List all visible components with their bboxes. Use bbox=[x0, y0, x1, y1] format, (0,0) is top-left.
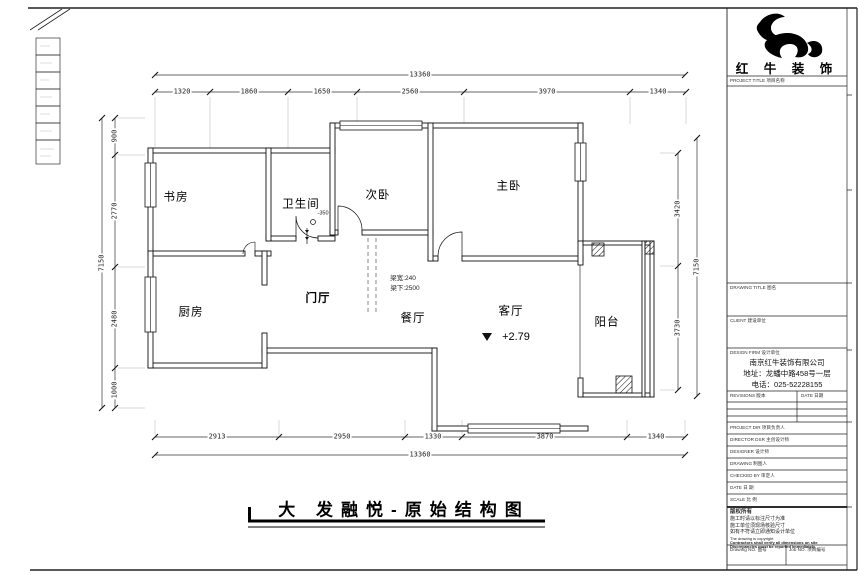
dim-top-3: 1650 bbox=[313, 89, 332, 96]
project-title-label: PROJECT TITLE 项目名称 bbox=[730, 79, 785, 84]
living-level-marker bbox=[482, 333, 492, 341]
note-0: 版权所有 bbox=[730, 510, 752, 516]
drawing-title: 大 发融悦-原始结构图 bbox=[278, 496, 529, 521]
drawing-sheet: 13360 1320 1860 1650 2560 3970 1340 2913… bbox=[0, 0, 860, 580]
row-checked: CHECKED BY 审定人 bbox=[730, 474, 775, 479]
room-label-kitchen: 厨房 bbox=[179, 307, 204, 319]
room-label-dining: 餐厅 bbox=[401, 313, 426, 325]
note-3: 如有不符请立即通知设计单位 bbox=[730, 530, 795, 535]
logo-text: 红 牛 装 饰 bbox=[736, 58, 838, 77]
beam-width-note: 梁宽:240 bbox=[390, 275, 416, 283]
dim-right-1: 3420 bbox=[675, 200, 682, 219]
dim-top-total: 13360 bbox=[408, 72, 431, 79]
dim-left-4: 1000 bbox=[112, 381, 119, 400]
company-address: 地址：龙蟠中路458号一层 bbox=[743, 370, 831, 378]
dim-left-1: 900 bbox=[112, 129, 119, 144]
room-label-master: 主卧 bbox=[497, 181, 522, 193]
dim-right-2: 3730 bbox=[675, 319, 682, 338]
room-label-foyer: 门厅 bbox=[306, 293, 331, 305]
dimension-lines bbox=[102, 75, 697, 455]
beam-lines bbox=[368, 238, 376, 315]
room-label-bedroom2: 次卧 bbox=[366, 190, 391, 202]
dim-top-1: 1320 bbox=[173, 89, 192, 96]
job-no-label: Job NO. 项目编号 bbox=[789, 548, 826, 553]
dim-bottom-total: 13360 bbox=[408, 452, 431, 459]
bath-level-value: -350 bbox=[317, 211, 328, 217]
company-phone: 电话：025-52228155 bbox=[752, 381, 823, 389]
room-label-study: 书房 bbox=[164, 192, 189, 204]
living-level-value: +2.79 bbox=[502, 331, 530, 343]
drawing-no-label: Drawing NO. 图号 bbox=[730, 548, 767, 553]
room-label-bathroom: 卫生间 bbox=[282, 199, 320, 211]
row-date: DATE 日 期 bbox=[730, 486, 754, 491]
dim-bottom-5: 1340 bbox=[647, 434, 666, 441]
revisions-label: REVISIONS 版本 bbox=[730, 394, 765, 399]
row-drawing: DRAWING 制图人 bbox=[730, 462, 767, 467]
dim-bottom-3: 1330 bbox=[424, 434, 443, 441]
note-2: 施工单位须现场核验尺寸 bbox=[730, 524, 785, 529]
design-firm-label: DESIGN FIRM 设计单位 bbox=[730, 351, 780, 356]
beam-under-note: 梁下:2500 bbox=[390, 285, 419, 293]
dim-bottom-4: 3870 bbox=[536, 434, 555, 441]
note-1: 施工时请以标注尺寸为准 bbox=[730, 517, 785, 522]
room-label-balcony: 阳台 bbox=[595, 317, 620, 329]
date-col-label: DATE 日期 bbox=[801, 394, 823, 399]
dim-top-2: 1860 bbox=[240, 89, 259, 96]
dim-top-5: 3970 bbox=[538, 89, 557, 96]
row-designer: DESIGNER 设计师 bbox=[730, 450, 769, 455]
dim-top-6: 1340 bbox=[649, 89, 668, 96]
dim-bottom-1: 2913 bbox=[208, 434, 227, 441]
row-scale: SCALE 比 例 bbox=[730, 498, 757, 503]
windows bbox=[145, 121, 586, 433]
row-director: DIRECTOR DSR 主创设计师 bbox=[730, 438, 789, 443]
dim-left-total: 7150 bbox=[99, 254, 106, 273]
margin-stamp-boxes bbox=[36, 38, 60, 164]
dim-bottom-2: 2950 bbox=[333, 434, 352, 441]
room-label-living: 客厅 bbox=[499, 306, 524, 318]
row-project-dir: PROJECT DIR 项目负责人 bbox=[730, 426, 785, 431]
bath-symbols bbox=[305, 220, 316, 245]
company-name: 南京红牛装饰有限公司 bbox=[750, 359, 825, 367]
dim-top-4: 2560 bbox=[401, 89, 420, 96]
drawing-title-label: DRAWING TITLE 图名 bbox=[730, 286, 776, 291]
client-label: CLIENT 建设单位 bbox=[730, 319, 766, 324]
dim-left-3: 2480 bbox=[112, 310, 119, 329]
dim-right-total: 7150 bbox=[694, 258, 701, 277]
dim-left-2: 2770 bbox=[112, 202, 119, 221]
